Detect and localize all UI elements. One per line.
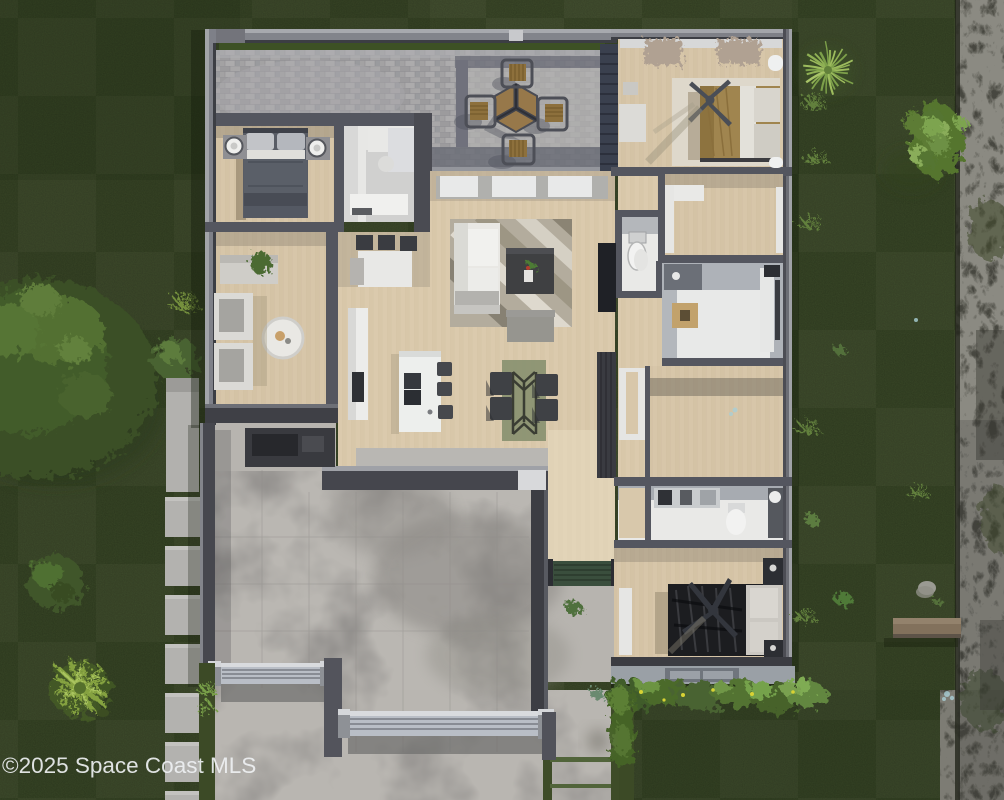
svg-text:©2025 Space Coast MLS: ©2025 Space Coast MLS <box>2 753 256 778</box>
